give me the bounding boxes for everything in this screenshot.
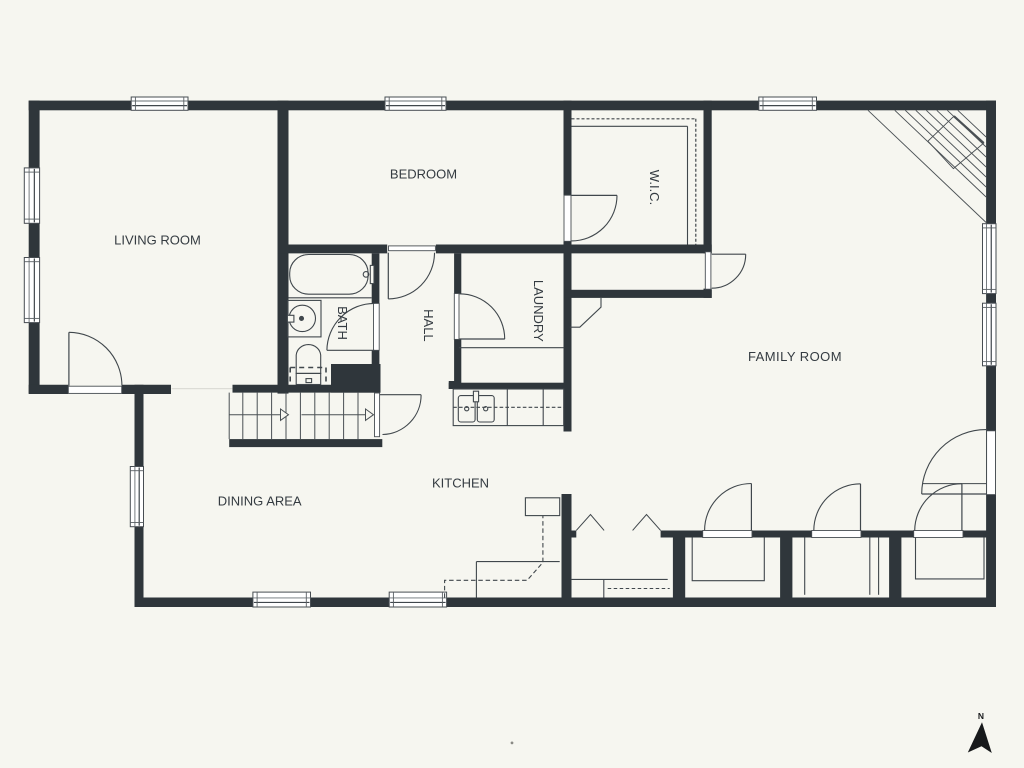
svg-text:LIVING ROOM: LIVING ROOM — [114, 232, 201, 247]
svg-text:KITCHEN: KITCHEN — [432, 475, 489, 490]
svg-text:BEDROOM: BEDROOM — [390, 167, 457, 182]
svg-text:N: N — [978, 711, 984, 721]
svg-text:FAMILY ROOM: FAMILY ROOM — [748, 349, 842, 364]
svg-text:LAUNDRY: LAUNDRY — [531, 280, 546, 342]
svg-text:BATH: BATH — [335, 306, 350, 340]
svg-text:HALL: HALL — [421, 309, 436, 342]
svg-text:DINING AREA: DINING AREA — [218, 493, 302, 508]
svg-text:W.I.C.: W.I.C. — [647, 170, 662, 205]
